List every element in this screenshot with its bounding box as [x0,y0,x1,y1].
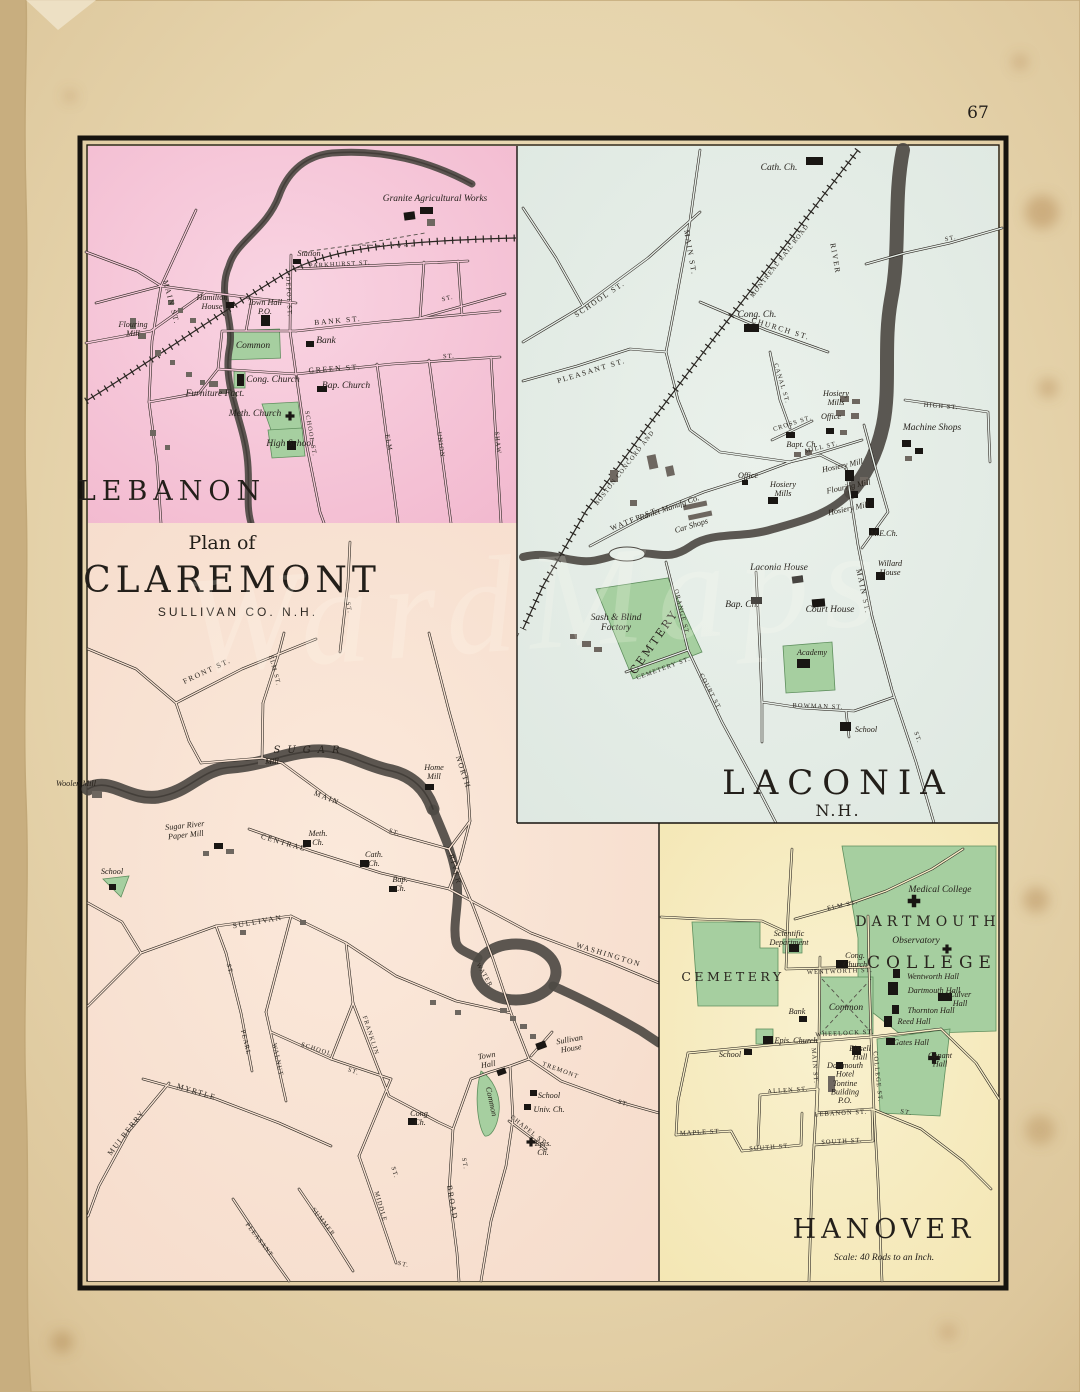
label-reed-hall: Reed Hall [897,1017,932,1026]
building-reed-hall [884,1016,892,1027]
label-office: Office [821,412,841,421]
label-college: COLLEGE [867,953,997,973]
building-bapt-church [786,432,795,438]
label-high-school: High School [265,439,314,449]
label-bap-church: Bap.Ch. [392,875,407,893]
label-medical-college: Medical College [907,885,971,895]
laconia-title: LACONIA [722,763,954,803]
label-school: School [719,1050,742,1059]
label-furniture-factory: Furniture Fact. [185,389,245,399]
label-observatory: Observatory [892,936,940,946]
label-st: ST. [443,353,455,361]
label-cath-church: Cath. Ch. [761,163,798,173]
building-dartmouth-hall [888,982,898,995]
label-thornton-hall: Thornton Hall [907,1006,955,1015]
label-school: School [855,725,878,734]
label-univ-church: Univ. Ch. [533,1105,564,1114]
label-dartmouth: DARTMOUTH [855,914,1000,930]
label-sugar-river: SUGAR [273,745,346,756]
label-mill: Mill [264,757,279,766]
label-woolen-mill: Woolen Mill [56,779,97,788]
label-granite-works: Granite Agricultural Works [383,194,488,204]
building-bank [306,341,314,347]
hanover-title: HANOVER [793,1214,976,1245]
label-machine-shops: Machine Shops [902,423,962,433]
panel-laconia: Cath. Ch. MAIN ST. SCHOOL ST. PLEASANT S… [490,146,1002,823]
page-number: 67 [967,103,989,123]
building-school [109,884,116,890]
label-bank: Bank [789,1007,806,1016]
atlas-page: 67 [0,0,1080,1392]
label-office-2: Office [738,471,758,480]
building-school [744,1049,752,1055]
label-cemetery: CEMETERY [681,969,784,984]
lebanon-title: LEBANON [78,476,266,507]
building-school-2 [530,1090,537,1096]
hanover-scale: Scale: 40 Rods to an Inch. [834,1253,934,1263]
atlas-plate: 67 [0,0,1080,1392]
label-town-hall: TownHall [477,1050,497,1071]
label-bank-poi: Bank [316,336,336,346]
label-wentworth-hall: Wentworth Hall [907,972,960,981]
label-meth-church: Meth. Church [228,409,282,419]
label-station: Station [297,249,320,258]
label-school-2: School [538,1091,561,1100]
label-epis-church: Epis.Ch. [534,1139,552,1157]
label-school: School [101,867,124,876]
label-epis-church: Epis. Church [774,1036,818,1045]
label-common: Common [236,341,271,351]
building-academy [797,659,810,668]
building-school [840,722,851,731]
building-cath-church [806,157,823,165]
panel-hanover: Medical College DARTMOUTH Observatory CO… [659,823,1001,1281]
label-bap-church: Bap. Church [322,381,370,391]
label-cong-church: Cong. Church [246,375,300,385]
building-town-hall [261,315,270,326]
building-thornton-hall [892,1005,899,1014]
label-gates-hall: Gates Hall [893,1038,929,1047]
building-woolen-mill [92,791,102,798]
building-epis-church [763,1036,773,1044]
panel-lebanon: Granite Agricultural Works Station PARKH… [78,146,517,523]
building-cong-church [237,374,244,386]
building-univ-church [524,1104,531,1110]
laconia-subtitle: N.H. [815,801,860,820]
building-bank [799,1016,807,1022]
label-common: Common [829,1003,864,1013]
building-home-mill [425,784,434,790]
label-scientific-dept: ScientificDepartment [768,929,809,947]
